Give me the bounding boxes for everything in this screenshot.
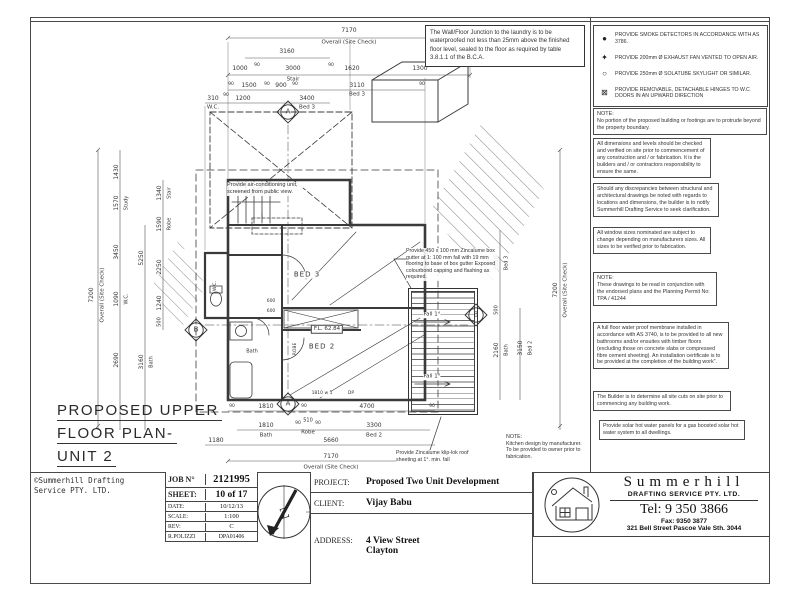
project-value: Proposed Two Unit Development [366, 477, 532, 487]
room-label-bath: Bath [246, 350, 258, 355]
note-membrane: A full floor water proof membrane instal… [593, 322, 729, 369]
dimension-label: Overall (Site Check) [322, 40, 377, 46]
rev-value: C [206, 523, 257, 530]
firm-subtitle: DRAFTING SERVICE PTY. LTD. [610, 491, 758, 501]
dimension-label: 90 [301, 405, 307, 410]
dimension-label: 7170 [341, 28, 356, 34]
legend-text: PROVIDE 200mm Ø EXHAUST FAN VENTED TO OP… [615, 55, 758, 62]
dimension-label: 3400 [299, 96, 314, 102]
section-marker-b: B [194, 327, 199, 334]
dimension-label: Bed 3 [349, 92, 365, 98]
legend-row: ○ PROVIDE 250mm Ø SOLATUBE SKYLIGHT OR S… [598, 70, 763, 78]
dimension-label: 1620 [344, 66, 359, 72]
note-window-sizes: All window sizes nominated are subject t… [593, 227, 711, 254]
client-value: Vijay Babu [366, 498, 532, 508]
note-body: Should any discrepancies between structu… [597, 186, 715, 214]
dimension-label: 600 [267, 310, 276, 315]
address-line1: 4 View Street [366, 536, 532, 546]
hinge-icon: ⊠ [598, 89, 611, 97]
firm-phone: Tel: 9 350 3866 [602, 502, 766, 518]
dimension-label: 1810 [258, 423, 273, 429]
note-body: A full floor water proof membrane instal… [597, 325, 725, 366]
dimension-label: 1500 [241, 83, 256, 89]
date-value: 10/12/13 [206, 503, 257, 510]
firm-address: 321 Bell Street Pascoe Vale Sth. 3044 [602, 525, 766, 532]
dimension-label: 90 [254, 64, 260, 69]
dimension-label: 90 [429, 405, 435, 410]
project-row: PROJECT: Proposed Two Unit Development [311, 472, 532, 493]
dimension-label: 2250 [157, 259, 163, 274]
drawing-title-line3: UNIT 2 [57, 448, 116, 467]
dimension-label: Bed 3 [505, 256, 510, 270]
section-marker-b: B [474, 312, 479, 319]
sheet-row: SHEET: 10 of 17 [166, 488, 257, 502]
drawing-title: PROPOSED UPPER FLOOR PLAN- UNIT 2 [57, 402, 222, 471]
dimension-label: Overall (Site Check) [304, 465, 359, 471]
address-row: ADDRESS: 4 View Street Clayton [311, 514, 532, 584]
dimension-label: 7170 [323, 454, 338, 460]
sheet-number: 10 of 17 [206, 490, 257, 500]
address-line2: Clayton [366, 546, 532, 556]
job-label: JOB N° [166, 474, 206, 485]
dimension-label: 3150 [518, 340, 524, 355]
note-body: All dimensions and levels should be chec… [597, 141, 707, 175]
dimension-label: Bath [505, 344, 510, 356]
dimension-label: 90 [223, 94, 229, 99]
drawing-title-line2: FLOOR PLAN- [57, 425, 177, 444]
note-title: NOTE: [597, 111, 763, 118]
dimension-label: 3450 [114, 244, 120, 259]
box-gutter-note: Provide 450 x 100 mm Zincalume box gutte… [406, 248, 498, 281]
dimension-label: 310 [207, 96, 218, 102]
note-body: Provide solar hot water panels for a gas… [603, 423, 741, 437]
rev-row: REV: C [166, 522, 257, 532]
smoke-detector-icon: ● [598, 35, 611, 43]
dimension-label: Bath [150, 356, 155, 368]
note-dimensions: All dimensions and levels should be chec… [593, 138, 711, 178]
dimension-label: Bed 3 [299, 105, 315, 111]
date-row: DATE: 10/12/13 [166, 502, 257, 512]
section-marker-a: A [286, 109, 291, 116]
sheet-label: SHEET: [166, 489, 206, 500]
firm-fax: Fax: 9350 3877 [602, 518, 766, 525]
dimension-label: 90 [264, 83, 270, 88]
dimension-label: 1810 [258, 404, 273, 410]
legend-text: PROVIDE REMOVABLE, DETACHABLE HINGES TO … [615, 87, 763, 100]
dimension-label: 1340 [157, 185, 163, 200]
dimension-label: W.C. [125, 293, 130, 304]
dimension-label: Robe [301, 430, 315, 436]
job-table: JOB N° 2121995 SHEET: 10 of 17 DATE: 10/… [165, 472, 258, 542]
dimension-label: Bath [260, 433, 273, 439]
legend-row: ✦ PROVIDE 200mm Ø EXHAUST FAN VENTED TO … [598, 54, 763, 62]
drawing-number: DPA01406 [206, 534, 257, 540]
kitchen-note-body: Kitchen design by manufacturer. To be pr… [506, 441, 588, 461]
fall-label: Fall 1° [423, 312, 440, 318]
dimension-label: 90 [292, 83, 298, 88]
client-label: CLIENT: [311, 497, 366, 510]
waterproofing-note: The Wall/Floor Junction to the laundry i… [425, 25, 585, 67]
note-site-cuts: The Builder is to determine all site cut… [593, 391, 731, 411]
dimension-label: 3300 [366, 423, 381, 429]
note-body: The Builder is to determine all site cut… [597, 394, 727, 408]
dimension-label: 90 [328, 64, 334, 69]
job-row: JOB N° 2121995 [166, 472, 257, 488]
drawing-title-line1: PROPOSED UPPER [57, 402, 222, 421]
note-permit: NOTE: These drawings to be read in conju… [593, 272, 717, 306]
dimension-label: Study [125, 196, 130, 210]
firm-block: Summerhill DRAFTING SERVICE PTY. LTD. Te… [533, 472, 770, 537]
dimension-label: 3160 [279, 49, 294, 55]
firm-name: Summerhill [602, 474, 766, 491]
note-discrepancies: Should any discrepancies between structu… [593, 183, 719, 217]
waterproofing-note-text: The Wall/Floor Junction to the laundry i… [430, 30, 569, 61]
fall-label: Fall 1° [423, 374, 440, 380]
dimension-label: 1570 [114, 195, 120, 210]
room-label-wc: W.C. [214, 281, 219, 291]
window-tag: 1810 w 1 [312, 392, 333, 397]
date-label: DATE: [166, 503, 206, 511]
dimension-label: 1300 [412, 66, 427, 72]
dimension-label: W.C. [207, 105, 219, 111]
kitchen-note: NOTE: Kitchen design by manufacturer. To… [506, 434, 588, 460]
dimension-label: 1090 [114, 291, 120, 306]
legend-text: PROVIDE SMOKE DETECTORS IN ACCORDANCE WI… [615, 32, 763, 45]
client-row: CLIENT: Vijay Babu [311, 493, 532, 514]
copyright: ©Summerhill Drafting Service PTY. LTD. [34, 476, 124, 496]
dimension-label: 5250 [139, 250, 145, 265]
dimension-label: 500 [495, 305, 500, 315]
address-label: ADDRESS: [311, 514, 366, 547]
dimension-label: 500 [158, 317, 163, 327]
project-label: PROJECT: [311, 476, 366, 489]
dimension-label: 3110 [349, 83, 364, 89]
dimension-label: Overall (Site Check) [563, 263, 569, 318]
kitchen-note-title: NOTE: [506, 434, 588, 441]
dimension-label: 600 [267, 300, 276, 305]
legend-row: ⊠ PROVIDE REMOVABLE, DETACHABLE HINGES T… [598, 87, 763, 100]
dimension-label: Bed 2 [366, 433, 382, 439]
scale-row: SCALE: 1:100 [166, 512, 257, 522]
dimension-label: 3000 [285, 66, 300, 72]
dimension-label: Bed 2 [529, 341, 534, 355]
dimension-label: Robe [168, 218, 173, 231]
note-solar: Provide solar hot water panels for a gas… [599, 420, 745, 440]
rev-label: REV: [166, 523, 206, 531]
room-label-robe: ROBE [294, 343, 299, 356]
dimension-label: 1590 [157, 216, 163, 231]
dimension-label: 3160 [139, 354, 145, 369]
project-table: PROJECT: Proposed Two Unit Development C… [310, 472, 533, 584]
house-logo-icon [541, 475, 603, 535]
dimension-label: 5660 [323, 438, 338, 444]
legend: ● PROVIDE SMOKE DETECTORS IN ACCORDANCE … [593, 25, 768, 107]
note-boundary: NOTE: No portion of the proposed buildin… [593, 108, 767, 135]
section-marker-a: A [286, 401, 291, 408]
dimension-label: 2160 [494, 342, 500, 357]
dimension-label: 90 [228, 83, 234, 88]
note-title: NOTE: [597, 275, 713, 282]
job-number: 2121995 [206, 474, 257, 485]
scale-label: SCALE: [166, 513, 206, 521]
drawing-sheet: 7170Overall (Site Check)3160100090300090… [0, 0, 800, 600]
roof-sheeting-note: Provide Zincalume klip-lok roof sheeting… [396, 450, 470, 463]
room-label-bed2: BED 2 [309, 344, 335, 351]
note-body: No portion of the proposed building or f… [597, 118, 763, 132]
dimension-label: 4700 [359, 404, 374, 410]
dimension-label: 510 [303, 419, 313, 424]
dimension-label: Stair [168, 187, 173, 199]
drafter-row: R.POLIZZI DPA01406 [166, 532, 257, 542]
dimension-label: 900 [275, 83, 286, 89]
dimension-label: 1000 [232, 66, 247, 72]
note-body: These drawings to be read in conjunction… [597, 282, 713, 303]
dimension-label: 1200 [235, 96, 250, 102]
copyright-line1: ©Summerhill Drafting [34, 476, 124, 486]
dimension-label: 7200 [89, 287, 95, 302]
legend-text: PROVIDE 250mm Ø SOLATUBE SKYLIGHT OR SIM… [615, 71, 751, 78]
skylight-icon: ○ [598, 70, 611, 78]
scale-value: 1:100 [206, 513, 257, 520]
dimension-label: 90 [229, 405, 235, 410]
firm-text: Summerhill DRAFTING SERVICE PTY. LTD. Te… [602, 474, 766, 532]
drafter-name: R.POLIZZI [166, 533, 206, 541]
copyright-line2: Service PTY. LTD. [34, 486, 124, 496]
address-value: 4 View Street Clayton [366, 536, 532, 556]
dimension-label: 90 [419, 83, 425, 88]
room-label-bed3: BED 3 [294, 272, 320, 279]
dimension-label: 1240 [157, 295, 163, 310]
floor-level-label: F.L. 62.84 [311, 325, 343, 334]
note-body: All window sizes nominated are subject t… [597, 230, 707, 251]
dimension-label: 7200 [553, 282, 559, 297]
dimension-label: Overall (Site Check) [100, 268, 106, 323]
ac-note: Provide air-conditioning unit, screened … [227, 182, 303, 196]
dimension-label: 90 [295, 422, 301, 427]
dimension-label: 2690 [114, 352, 120, 367]
dimension-label: 90 [315, 422, 321, 427]
downpipe-tag: DP [348, 392, 354, 397]
dimension-label: 1430 [114, 164, 120, 179]
exhaust-fan-icon: ✦ [598, 54, 611, 62]
legend-row: ● PROVIDE SMOKE DETECTORS IN ACCORDANCE … [598, 32, 763, 45]
